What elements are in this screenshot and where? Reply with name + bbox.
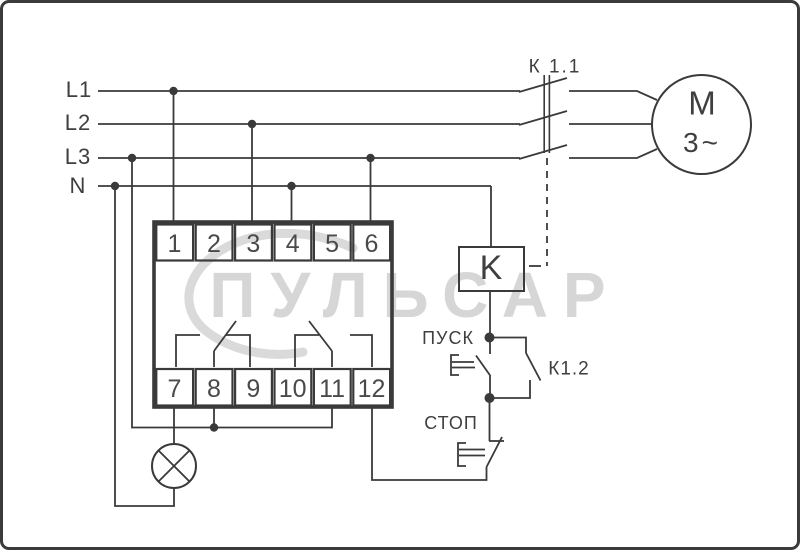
terminal-number-11: 11 xyxy=(319,375,345,403)
stop-button-group xyxy=(372,398,504,480)
start-button-label: ПУСК xyxy=(422,329,474,347)
motor-phase-label: 3~ xyxy=(683,129,721,157)
terminal-number-8: 8 xyxy=(207,375,221,403)
stop-button-label: СТОП xyxy=(424,414,478,432)
power-label-n: N xyxy=(70,175,87,197)
main-contact-label: К 1.1 xyxy=(529,58,582,77)
aux-contact-k12-group xyxy=(490,338,541,399)
power-rails xyxy=(98,91,520,186)
terminal-number-10: 10 xyxy=(279,375,307,403)
internal-relay-contacts xyxy=(176,321,372,367)
terminal-number-3: 3 xyxy=(246,230,260,258)
terminal-feed-wires xyxy=(174,91,371,223)
main-contact-k11-group xyxy=(519,75,567,266)
power-label-l3: L3 xyxy=(65,146,91,168)
power-label-l1: L1 xyxy=(66,79,92,101)
terminal-number-2: 2 xyxy=(207,230,221,258)
coil-label: K xyxy=(480,251,503,285)
device-body xyxy=(154,222,392,407)
aux-contact-label: К1.2 xyxy=(548,360,589,379)
terminal-number-9: 9 xyxy=(246,375,260,403)
left-control-wires xyxy=(115,158,332,506)
motor-feed-wires xyxy=(569,91,657,158)
motor-letter: M xyxy=(688,87,716,120)
terminal-number-7: 7 xyxy=(168,375,182,403)
terminal-number-6: 6 xyxy=(365,230,379,258)
terminal-number-1: 1 xyxy=(168,230,182,258)
wiring-diagram-frame: ПУЛЬСАР xyxy=(0,0,800,550)
power-label-l2: L2 xyxy=(65,112,91,134)
circuit-svg: 1 2 3 4 5 6 7 8 9 10 11 12 xyxy=(3,3,800,550)
lamp-icon xyxy=(152,407,196,488)
terminal-number-4: 4 xyxy=(286,230,300,258)
terminal-number-12: 12 xyxy=(358,375,386,403)
terminal-number-5: 5 xyxy=(325,230,339,258)
